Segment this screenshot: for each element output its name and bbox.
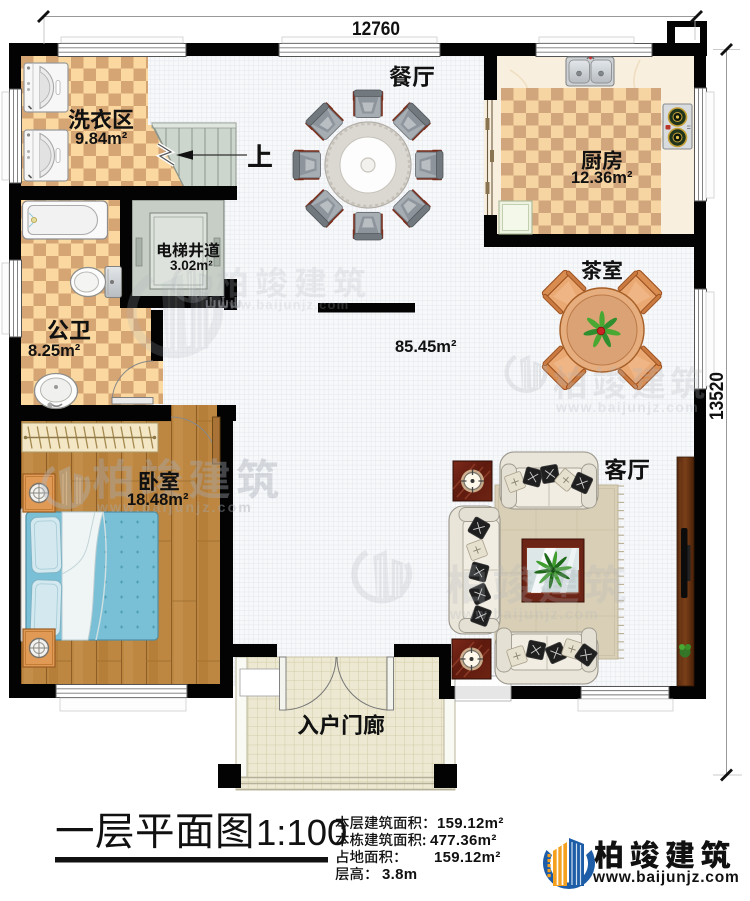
svg-text:13520: 13520 — [707, 372, 728, 420]
svg-text:159.12m²: 159.12m² — [434, 849, 501, 866]
svg-text:www.baijunjz.com: www.baijunjz.com — [555, 399, 699, 415]
svg-text:12760: 12760 — [352, 19, 400, 40]
svg-text:477.36m²: 477.36m² — [430, 832, 497, 849]
svg-text:9.84m²: 9.84m² — [75, 130, 128, 148]
svg-text:www.baijunjz.com: www.baijunjz.com — [449, 607, 599, 623]
svg-text:www.baijunjz.com: www.baijunjz.com — [217, 297, 349, 312]
svg-text:3.8m: 3.8m — [382, 866, 417, 883]
svg-text:8.25m²: 8.25m² — [28, 342, 81, 360]
svg-text:85.45m²: 85.45m² — [395, 338, 457, 356]
svg-text:18.48m²: 18.48m² — [127, 491, 189, 509]
svg-text:www.baijunjz.com: www.baijunjz.com — [592, 869, 740, 886]
svg-text:3.02m²: 3.02m² — [170, 258, 213, 273]
svg-text:159.12m²: 159.12m² — [437, 815, 504, 832]
svg-text:12.36m²: 12.36m² — [571, 169, 633, 187]
svg-text:1:100: 1:100 — [256, 812, 347, 853]
